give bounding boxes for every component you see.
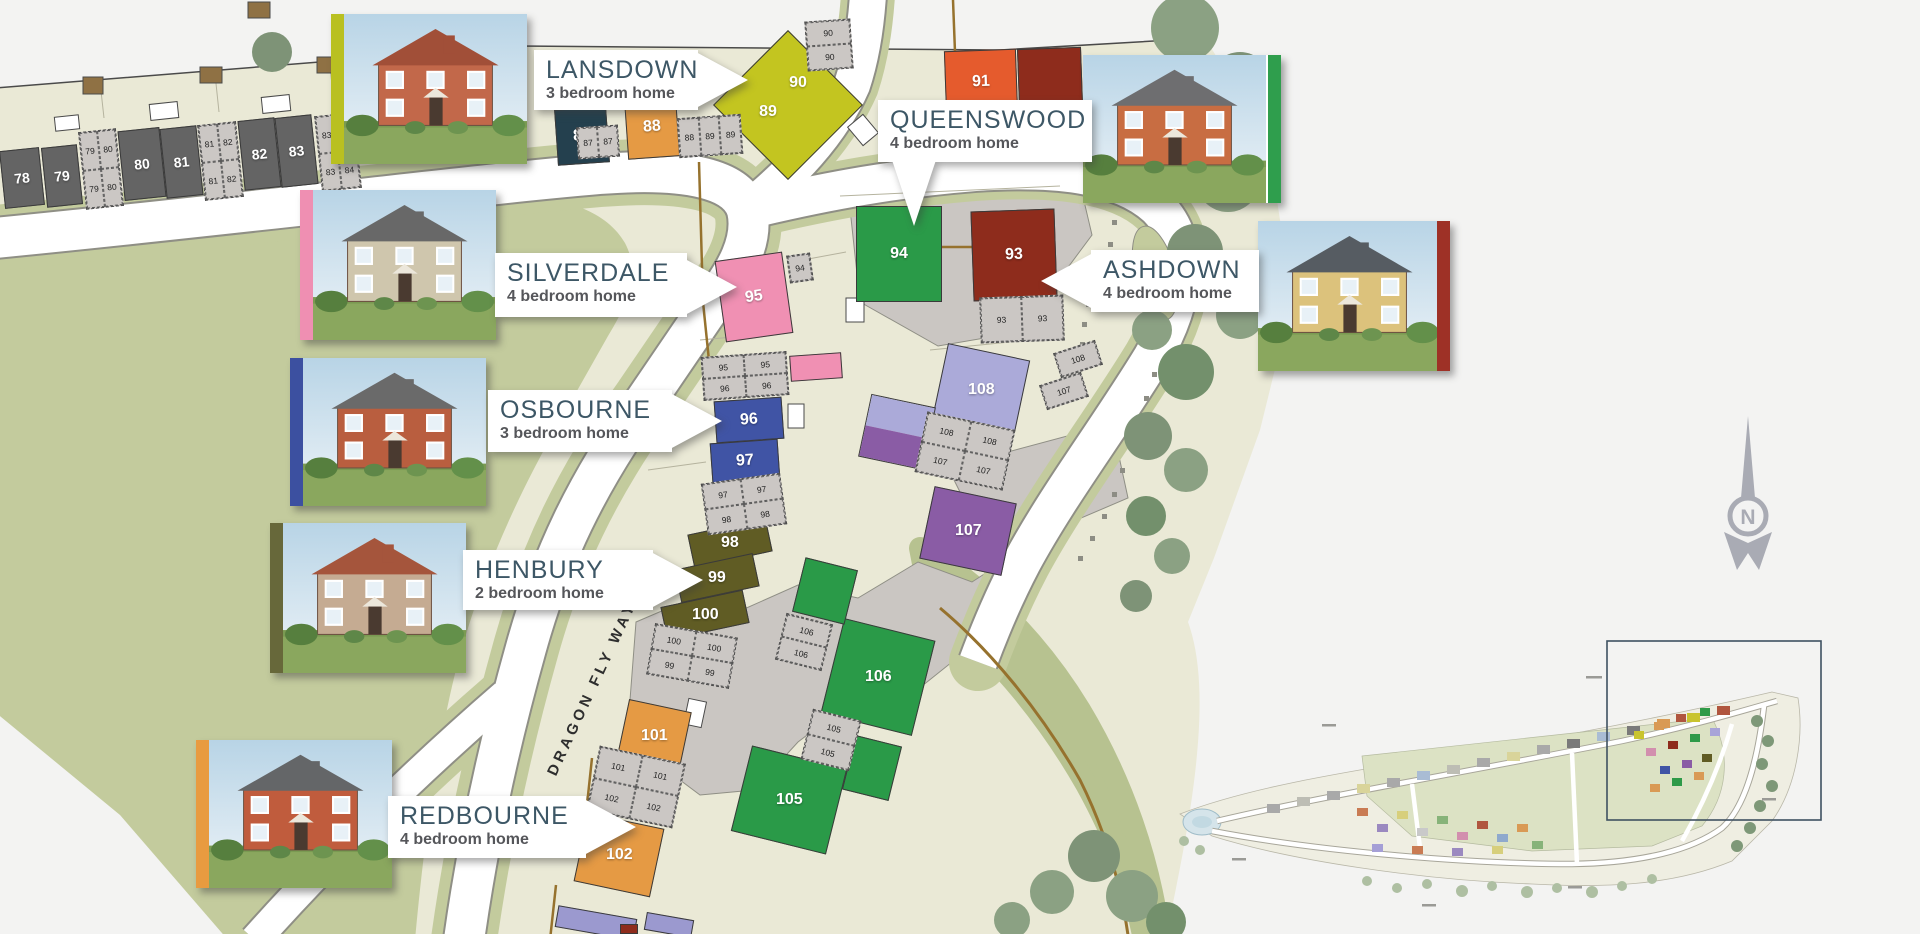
photo-ashdown — [1258, 221, 1450, 371]
plot-number: 80 — [133, 155, 150, 173]
plot-number: 79 — [53, 167, 70, 185]
parking-87: 8787 — [576, 125, 620, 160]
house-type-name: SILVERDALE — [507, 260, 675, 286]
plot-number: 93 — [1005, 246, 1023, 265]
photo-stripe — [331, 14, 344, 164]
plot-83[interactable]: 83 — [274, 114, 318, 187]
plot-number: 96 — [739, 410, 758, 429]
house-illustration — [344, 14, 527, 164]
plot-number: 99 — [708, 569, 726, 587]
house-type-name: QUEENSWOOD — [890, 107, 1080, 133]
plot-number: 94 — [890, 245, 908, 263]
plot-79[interactable]: 79 — [41, 144, 83, 207]
parking-space: 98 — [705, 504, 747, 534]
parking-space: 80 — [101, 167, 123, 207]
plot-partial-c — [620, 924, 638, 934]
parking-space: 94 — [787, 254, 812, 283]
house-illustration — [313, 190, 496, 340]
house-type-desc: 3 bedroom home — [546, 85, 686, 103]
house-type-desc: 4 bedroom home — [890, 135, 1080, 153]
callout-henbury[interactable]: HENBURY2 bedroom home — [463, 550, 653, 610]
parking-81-82: 81828182 — [197, 121, 244, 201]
plot-number: 83 — [288, 142, 305, 160]
parking-space: 90 — [807, 43, 853, 70]
parking-95-96: 95959696 — [701, 351, 790, 401]
house-illustration — [1258, 221, 1441, 371]
callout-osbourne[interactable]: OSBOURNE3 bedroom home — [488, 390, 672, 452]
north-letter: N — [1740, 506, 1755, 529]
plot-95-garage — [789, 352, 843, 382]
parking-space: 93 — [980, 297, 1023, 342]
plot-number: 108 — [968, 381, 995, 399]
plot-number: 100 — [692, 606, 719, 624]
plot-number: 81 — [173, 153, 190, 171]
house-type-name: HENBURY — [475, 557, 641, 583]
plot-78[interactable]: 78 — [0, 147, 45, 209]
photo-stripe — [1268, 55, 1281, 203]
photo-silverdale — [300, 190, 496, 340]
house-type-name: REDBOURNE — [400, 803, 574, 829]
photo-lansdown — [331, 14, 527, 164]
photo-stripe — [290, 358, 303, 506]
parking-space: 88 — [678, 118, 701, 157]
house-type-name: ASHDOWN — [1103, 257, 1247, 283]
plot-number: 97 — [735, 451, 754, 470]
plot-93[interactable]: 93 — [970, 209, 1057, 302]
callout-redbourne[interactable]: REDBOURNE4 bedroom home — [388, 796, 586, 858]
parking-space: 87 — [577, 127, 599, 158]
photo-redbourne — [196, 740, 392, 888]
plot-91-neighbour — [1017, 47, 1083, 107]
plot-number: 82 — [251, 145, 268, 163]
parking-space: 82 — [217, 122, 239, 161]
house-illustration — [303, 358, 486, 506]
plot-number: 88 — [642, 117, 661, 136]
parking-79-80: 79807980 — [78, 128, 124, 210]
parking-space: 96 — [745, 373, 788, 397]
plot-number: 91 — [972, 73, 990, 92]
parking-space: 80 — [97, 129, 119, 169]
site-plan-inset[interactable] — [1172, 636, 1888, 934]
callout-lansdown[interactable]: LANSDOWN3 bedroom home — [534, 50, 698, 110]
plot-number: 101 — [641, 727, 668, 745]
plot-80[interactable]: 80 — [117, 127, 166, 201]
house-type-name: LANSDOWN — [546, 57, 686, 83]
house-illustration — [1083, 55, 1266, 203]
plot-number-89: 89 — [752, 103, 784, 121]
plot-number: 105 — [776, 791, 803, 809]
callout-silverdale[interactable]: SILVERDALE4 bedroom home — [495, 253, 687, 317]
house-illustration — [209, 740, 392, 888]
callout-ashdown[interactable]: ASHDOWN4 bedroom home — [1091, 250, 1259, 312]
plot-94[interactable]: 94 — [856, 206, 942, 302]
parking-88-89: 888989 — [677, 114, 744, 158]
plot-number: 102 — [606, 846, 633, 864]
plot-number-90: 90 — [782, 74, 814, 92]
plot-number: 98 — [721, 534, 739, 552]
parking-space: 95 — [744, 352, 787, 376]
parking-space: 93 — [1021, 296, 1064, 341]
photo-stripe — [196, 740, 209, 888]
house-type-desc: 2 bedroom home — [475, 585, 641, 603]
parking-90: 9090 — [804, 18, 853, 71]
plot-number: 95 — [744, 287, 764, 307]
house-type-desc: 4 bedroom home — [400, 831, 574, 849]
photo-stripe — [270, 523, 283, 673]
parking-space: 82 — [221, 159, 243, 198]
parking-97-98: 97979898 — [701, 473, 787, 536]
house-type-desc: 4 bedroom home — [1103, 285, 1247, 303]
photo-osbourne — [290, 358, 486, 506]
photo-stripe — [300, 190, 313, 340]
callout-queenswood[interactable]: QUEENSWOOD4 bedroom home — [878, 100, 1092, 162]
parking-space: 95 — [702, 355, 745, 379]
parking-space: 90 — [805, 20, 851, 47]
north-arrow-icon: N — [1690, 412, 1806, 572]
parking-space: 89 — [698, 116, 721, 155]
parking-space: 87 — [597, 126, 619, 157]
house-type-desc: 4 bedroom home — [507, 288, 675, 306]
photo-stripe — [1437, 221, 1450, 371]
plot-number: 78 — [13, 169, 30, 187]
photo-queenswood — [1083, 55, 1281, 203]
parking-93: 9393 — [979, 295, 1065, 344]
house-type-desc: 3 bedroom home — [500, 425, 660, 443]
site-plan-page: 78 79 80 81 82 83 87 88 90 89 91 93 94 9… — [0, 0, 1920, 934]
plot-95[interactable]: 95 — [715, 252, 794, 343]
photo-henbury — [270, 523, 466, 673]
plot-number: 106 — [865, 668, 892, 686]
plot-number: 107 — [955, 522, 982, 540]
house-type-name: OSBOURNE — [500, 397, 660, 423]
parking-space: 89 — [719, 115, 742, 154]
house-illustration — [283, 523, 466, 673]
plot-81[interactable]: 81 — [159, 125, 203, 198]
parking-94: 94 — [786, 252, 814, 283]
plot-96[interactable]: 96 — [714, 397, 785, 444]
parking-space: 98 — [744, 499, 786, 529]
parking-space: 96 — [703, 376, 746, 400]
